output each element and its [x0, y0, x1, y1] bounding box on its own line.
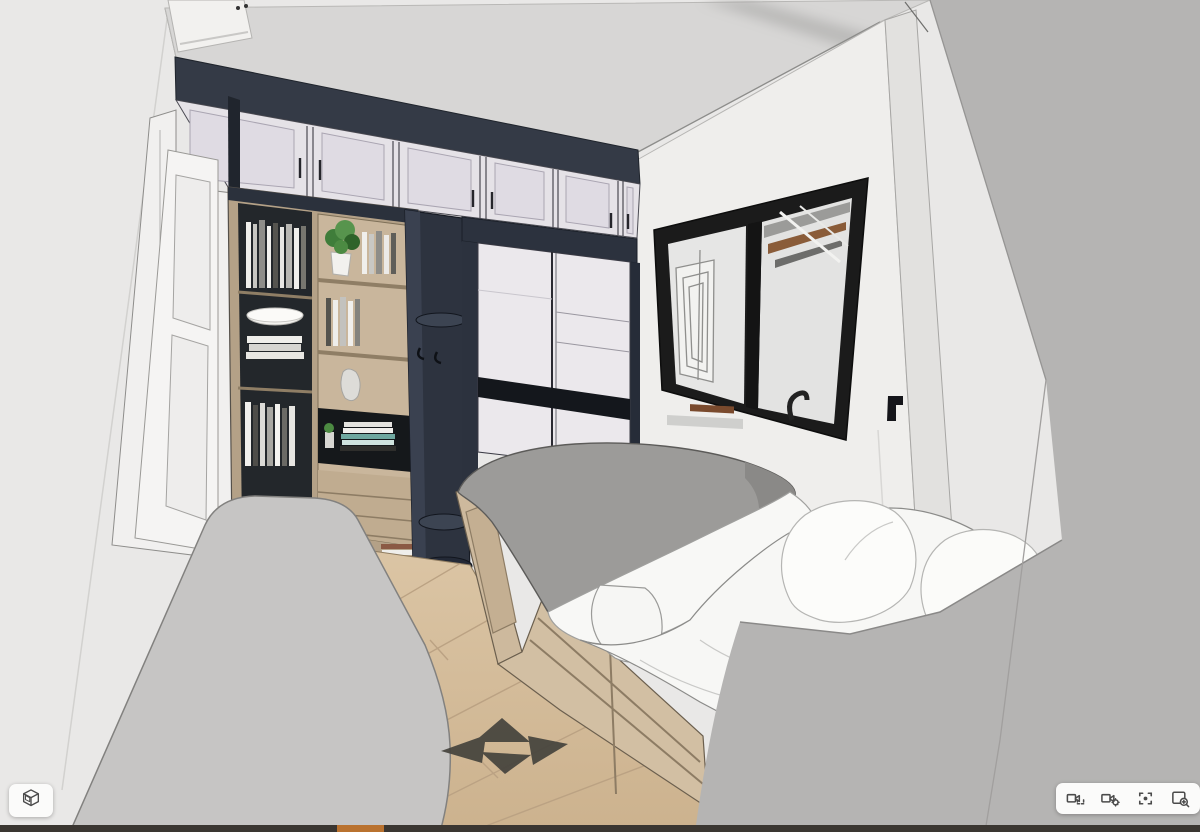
camera-gear-icon	[1100, 788, 1121, 809]
camera-frame-icon	[1065, 788, 1086, 809]
status-bar-accent	[337, 825, 384, 832]
zoom-window-button[interactable]	[1164, 785, 1197, 812]
corner-shelf-unit	[405, 210, 472, 575]
camera-view-button[interactable]	[1059, 785, 1092, 812]
cube-3d-icon	[20, 787, 42, 814]
recenter-view-button[interactable]	[1129, 785, 1162, 812]
camera-settings-button[interactable]	[1094, 785, 1127, 812]
mirror-reflection	[676, 250, 714, 382]
status-bar	[0, 825, 1200, 832]
focus-center-icon	[1135, 788, 1156, 809]
pillow	[782, 501, 916, 623]
viewer-stage	[0, 0, 1200, 832]
vase	[341, 369, 360, 401]
scene-3d-render[interactable]	[0, 0, 1200, 832]
books	[246, 220, 306, 289]
model-views-button[interactable]	[9, 784, 53, 817]
sliding-door-wardrobe	[462, 217, 640, 482]
camera-toolbar	[1056, 783, 1200, 814]
zoom-window-icon	[1170, 788, 1191, 809]
